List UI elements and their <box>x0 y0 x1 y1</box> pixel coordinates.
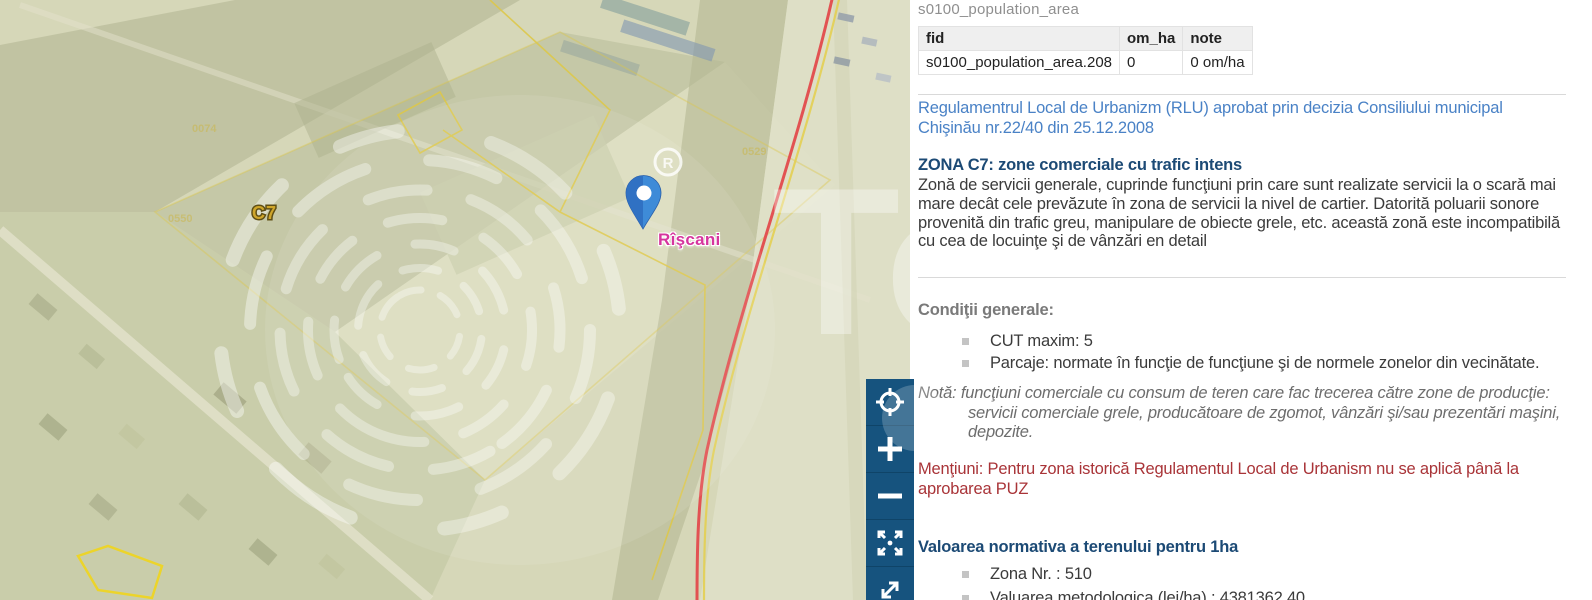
column-header-fid: fid <box>919 27 1120 51</box>
conditions-list: CUT maxim: 5 Parcaje: normate în funcţie… <box>918 330 1568 374</box>
note-text: Notă: funcţiuni comerciale cu consum de … <box>918 384 1570 443</box>
diagonal-arrows-icon <box>875 575 905 600</box>
aerial-imagery: 0074 0550 0529 To R <box>0 0 910 600</box>
list-item-text: Parcaje: normate în funcţie de funcţiune… <box>990 354 1539 372</box>
list-item: Parcaje: normate în funcţie de funcţiune… <box>918 352 1568 374</box>
list-item: CUT maxim: 5 <box>918 330 1568 352</box>
expand-arrows-icon <box>875 528 905 558</box>
attribute-table: fid om_ha note s0100_population_area.208… <box>918 26 1253 75</box>
list-item-text: CUT maxim: 5 <box>990 332 1093 350</box>
plus-icon <box>875 434 905 464</box>
square-bullet-icon <box>962 360 969 367</box>
cell-omha: 0 <box>1120 51 1183 75</box>
minus-icon <box>875 481 905 511</box>
list-item-text: Valuarea metodologica (lei/ha) : 4381362… <box>990 589 1305 600</box>
full-extent-button[interactable] <box>866 520 914 567</box>
list-item: Valuarea metodologica (lei/ha) : 4381362… <box>918 586 1568 600</box>
section-divider <box>918 94 1566 95</box>
marker-label: Rîşcani <box>658 230 721 250</box>
zoom-in-button[interactable] <box>866 426 914 473</box>
note-body: funcţiuni comerciale cu consum de teren … <box>961 384 1560 441</box>
conditions-heading: Condiţii generale: <box>918 301 1054 320</box>
mentions-text: Menţiuni: Pentru zona istorică Regulamen… <box>918 459 1572 499</box>
map-canvas[interactable]: 0074 0550 0529 To R <box>0 0 910 600</box>
table-row: s0100_population_area.208 0 0 om/ha <box>919 51 1253 75</box>
rlu-regulation-text: Regulamentrul Local de Urbanizm (RLU) ap… <box>918 99 1562 138</box>
column-header-omha: om_ha <box>1120 27 1183 51</box>
cell-fid: s0100_population_area.208 <box>919 51 1120 75</box>
resize-diagonal-button[interactable] <box>866 567 914 600</box>
column-header-note: note <box>1183 27 1252 51</box>
gis-viewer: 0074 0550 0529 To R <box>0 0 1592 600</box>
note-label: Notă: <box>918 384 956 402</box>
attribute-table-title: s0100_population_area <box>918 1 1079 18</box>
square-bullet-icon <box>962 595 969 600</box>
locate-button[interactable] <box>866 379 914 426</box>
map-toolbar <box>866 379 914 600</box>
square-bullet-icon <box>962 571 969 578</box>
zoom-out-button[interactable] <box>866 473 914 520</box>
info-panel: s0100_population_area fid om_ha note s01… <box>910 0 1592 600</box>
svg-text:0074: 0074 <box>192 123 217 135</box>
valuation-list: Zona Nr. : 510 Valuarea metodologica (le… <box>918 562 1568 600</box>
svg-text:0529: 0529 <box>742 146 766 158</box>
mentions-label: Menţiuni: <box>918 460 983 478</box>
square-bullet-icon <box>962 338 969 345</box>
mentions-body: Pentru zona istorică Regulamentul Local … <box>918 460 1519 498</box>
target-icon <box>875 387 905 417</box>
brand-watermark: To <box>772 144 910 379</box>
svg-text:0550: 0550 <box>168 213 192 225</box>
svg-text:R: R <box>663 155 674 172</box>
table-header-row: fid om_ha note <box>919 27 1253 51</box>
valuation-heading: Valoarea normativa a terenului pentru 1h… <box>918 538 1568 557</box>
zone-heading: ZONA C7: zone comerciale cu trafic inten… <box>918 156 1568 175</box>
cell-note: 0 om/ha <box>1183 51 1252 75</box>
list-item: Zona Nr. : 510 <box>918 562 1568 586</box>
section-divider <box>918 277 1566 278</box>
zone-label: C7 <box>252 203 277 223</box>
zone-description: Zonă de servicii generale, cuprinde func… <box>918 176 1572 251</box>
list-item-text: Zona Nr. : 510 <box>990 565 1092 583</box>
